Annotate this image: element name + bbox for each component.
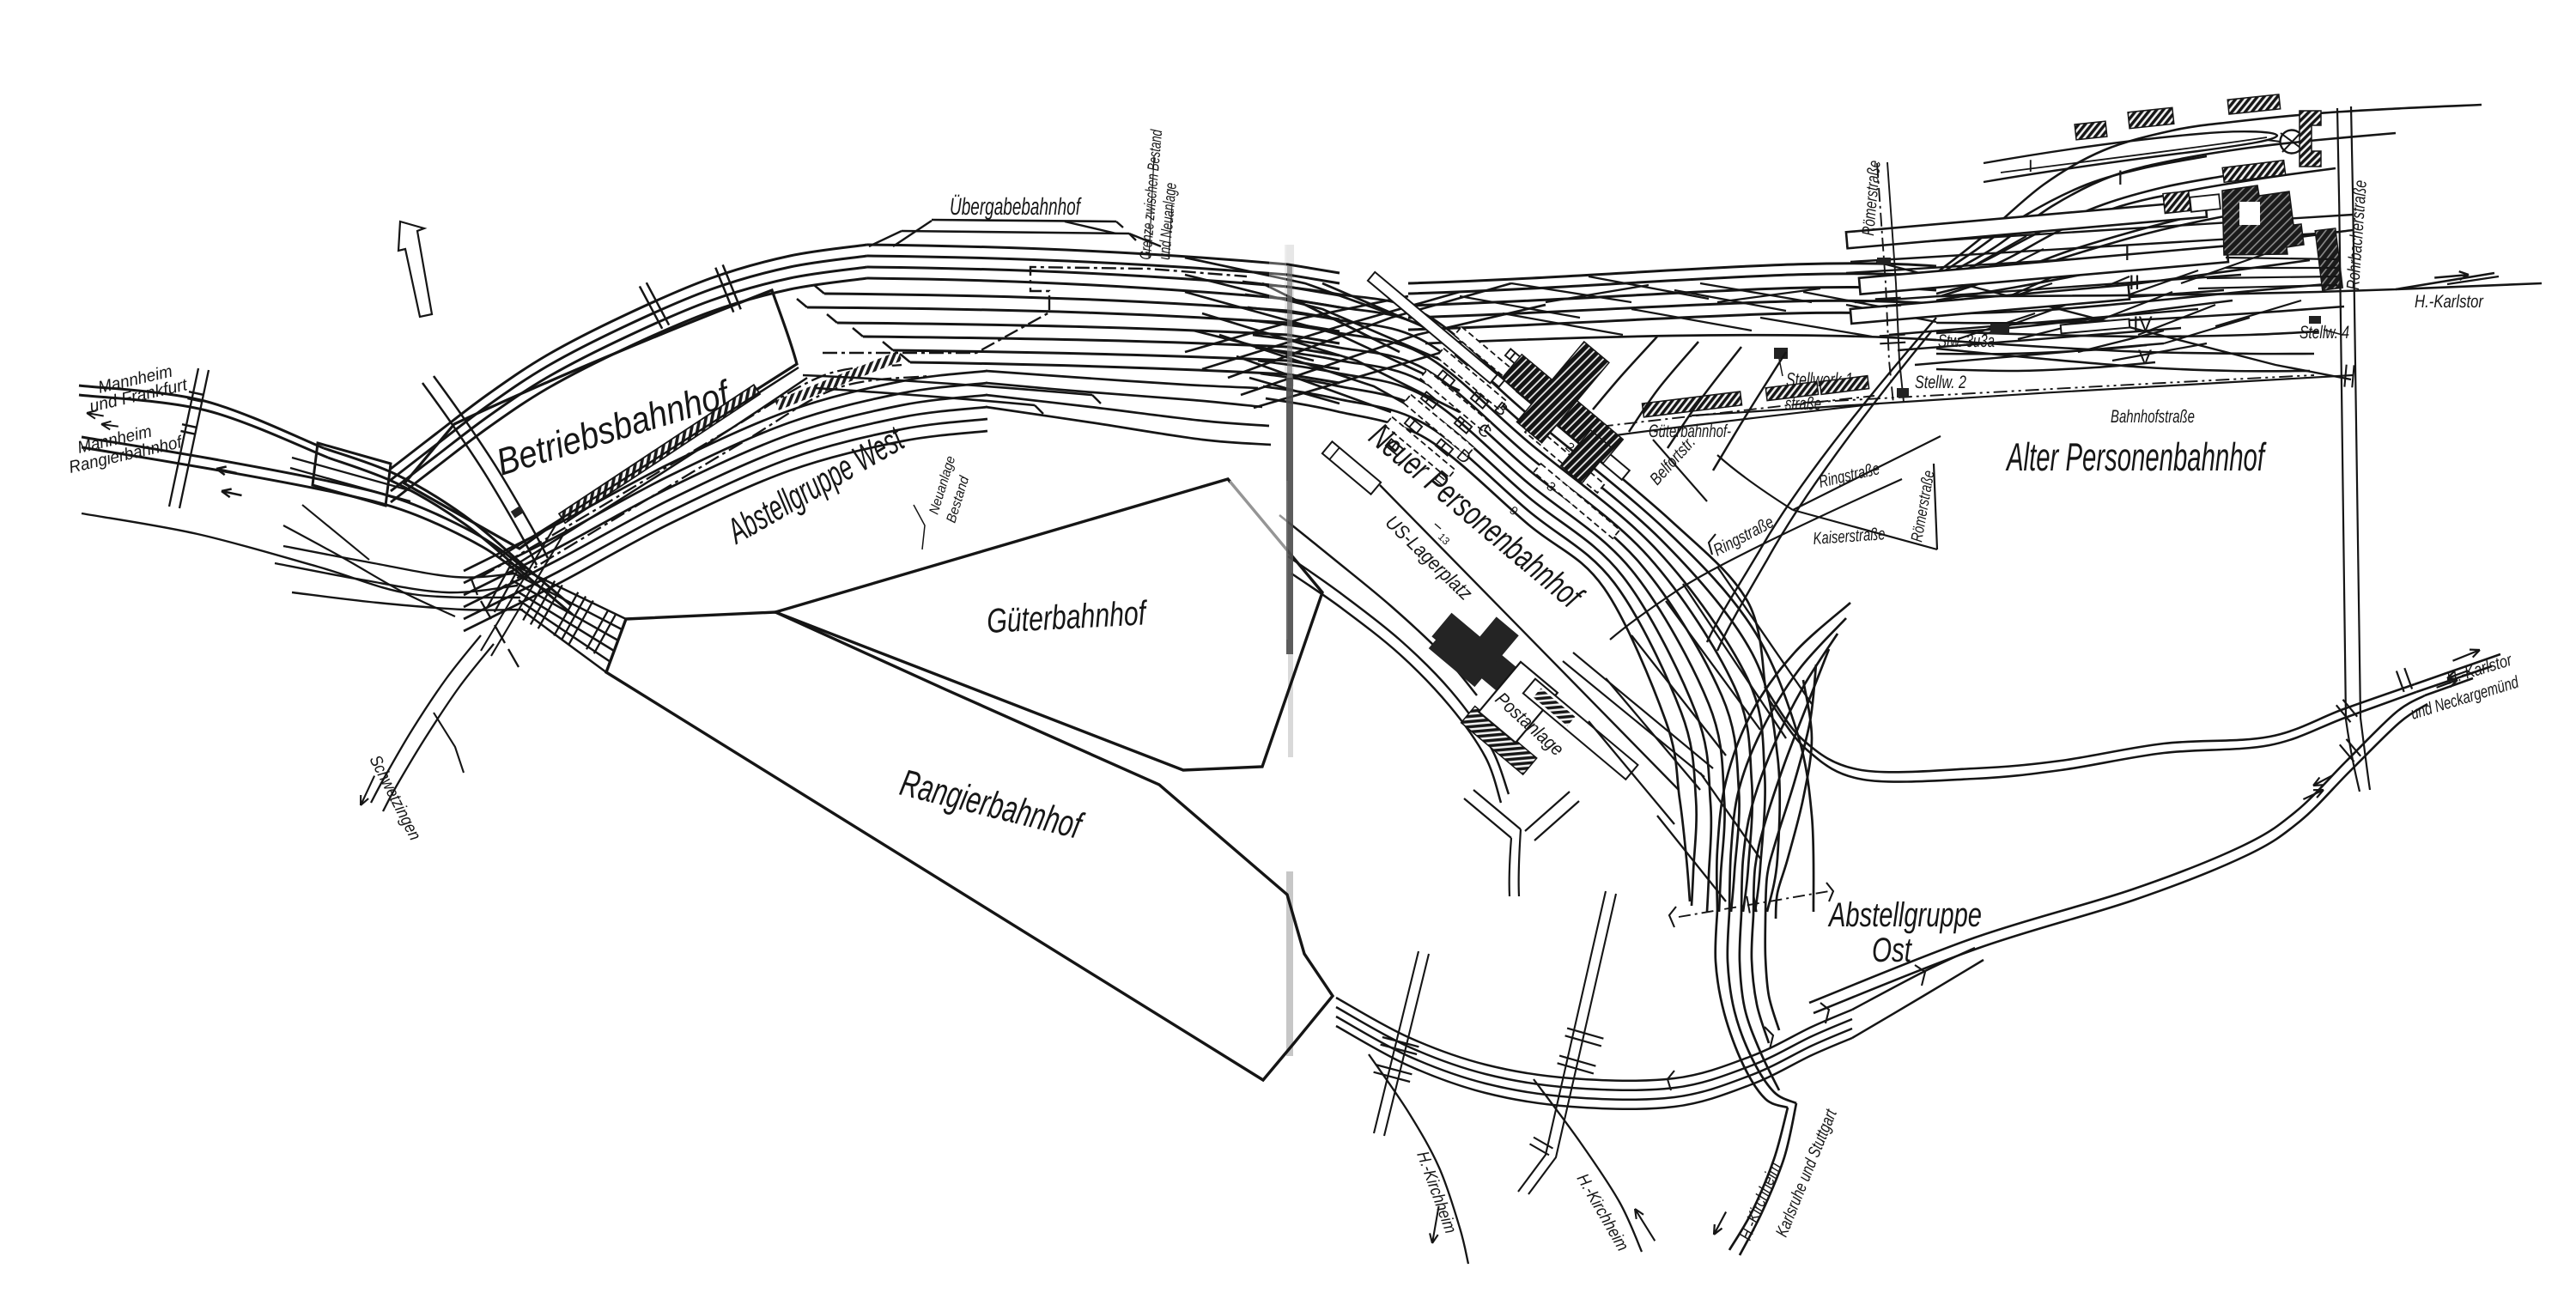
svg-text:I: I [2124,242,2130,265]
svg-text:I: I [2117,167,2123,190]
svg-text:I: I [2028,157,2033,176]
svg-text:Übergabebahnhof: Übergabebahnhof [950,193,1082,220]
svg-text:Ost: Ost [1872,932,1912,969]
svg-text:straße: straße [1785,394,1821,414]
svg-text:Stw. 3u3a: Stw. 3u3a [1938,331,1995,351]
svg-text:Stellw. 4: Stellw. 4 [2300,323,2349,343]
svg-text:V: V [2138,346,2152,369]
svg-text:Bahnhofstraße: Bahnhofstraße [2111,407,2195,427]
svg-text:Abstellgruppe: Abstellgruppe [1828,896,1982,934]
svg-text:II: II [2129,271,2140,294]
svg-text:Stellw. 2: Stellw. 2 [1915,373,1966,392]
svg-text:Alter Personenbahnhof: Alter Personenbahnhof [2005,434,2267,479]
svg-text:H.-Karlstor: H.-Karlstor [2415,292,2484,312]
svg-text:IV: IV [2133,313,2153,336]
